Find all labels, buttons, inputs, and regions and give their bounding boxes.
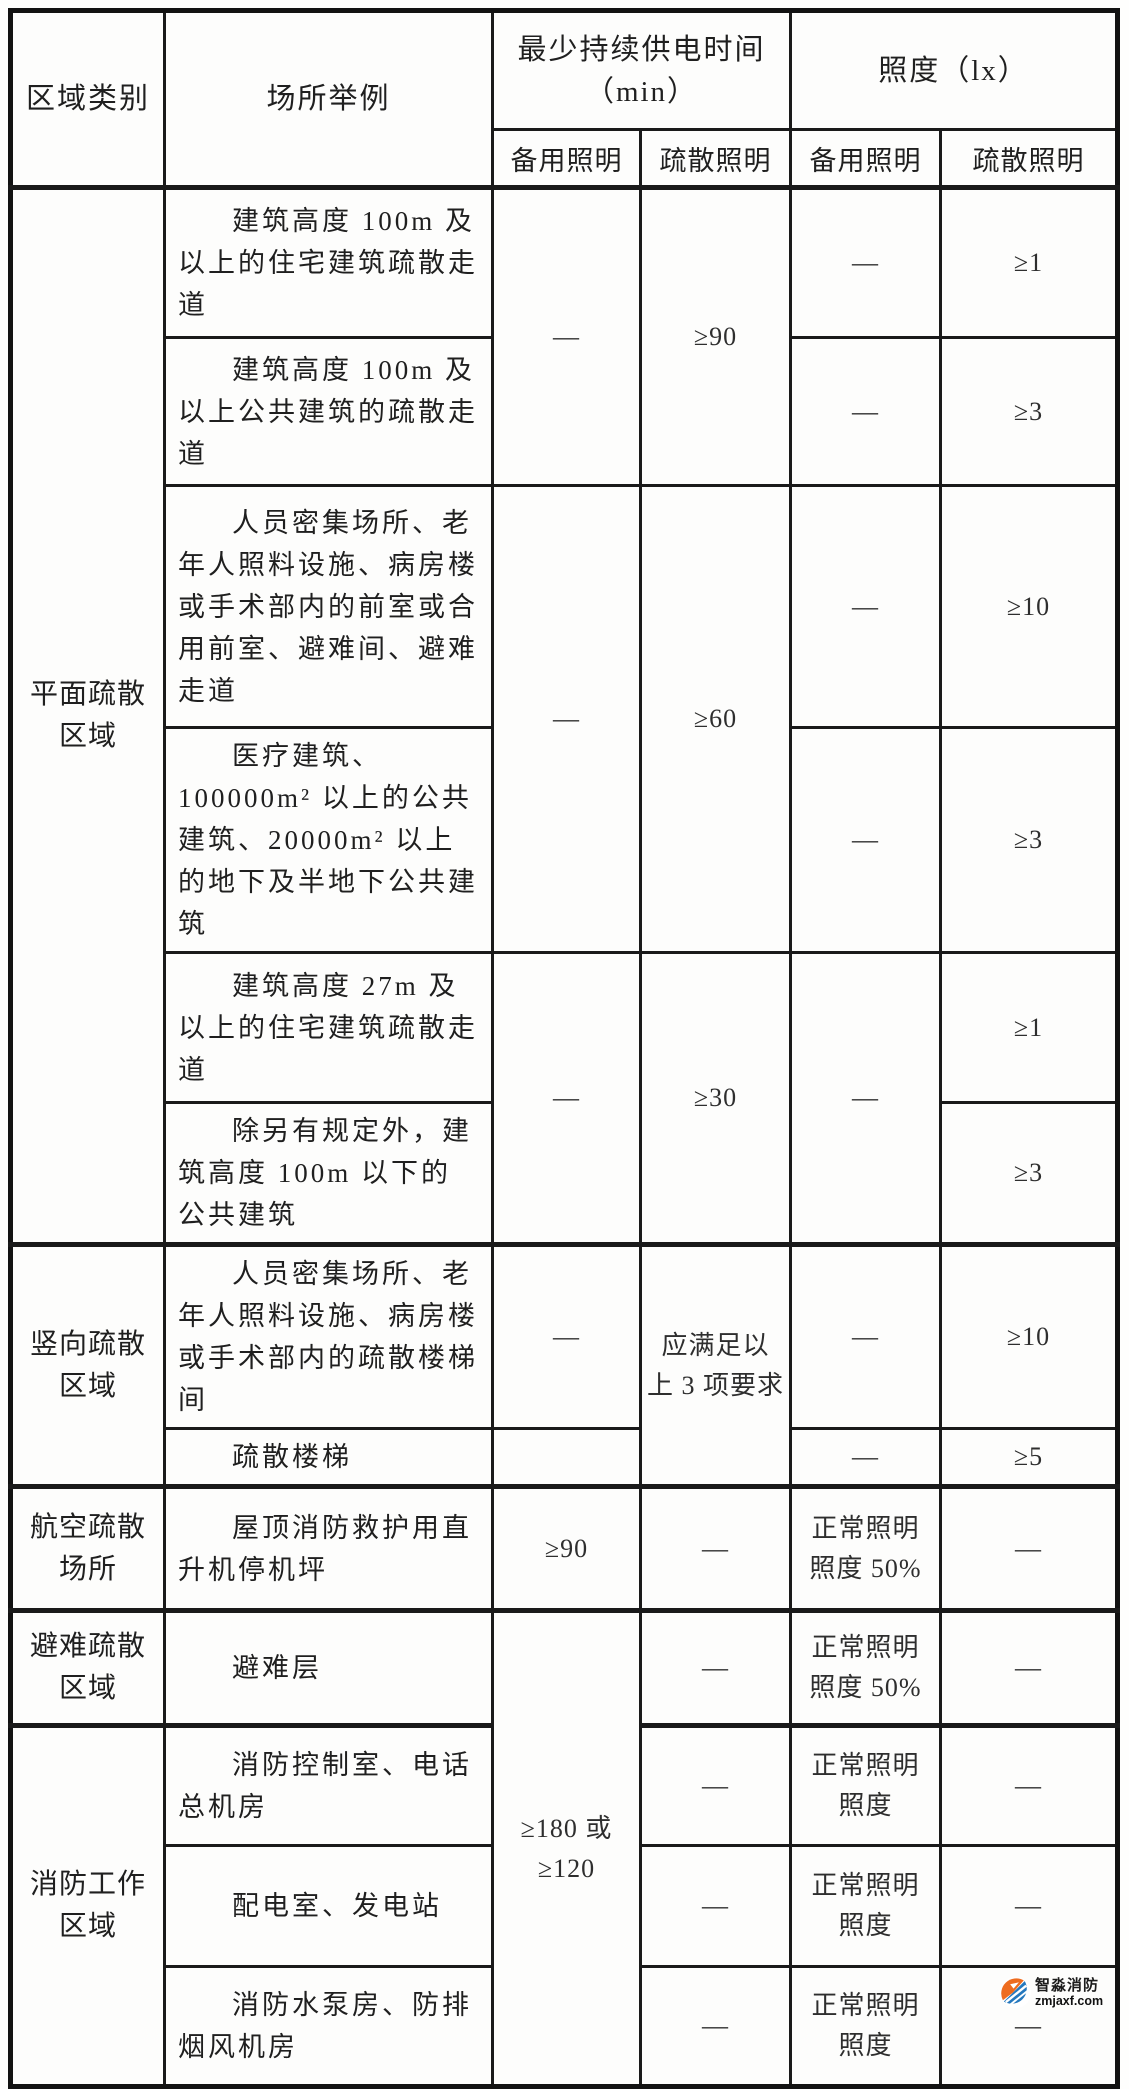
lux-backup-r13: 正常照明 照度	[791, 1967, 941, 2087]
emergency-lighting-requirements-table: 区域类别 场所举例 最少持续供电时间 （min） 照度（lx） 备用照明 疏散照…	[8, 8, 1120, 2089]
min-backup-r5-6: —	[493, 953, 641, 1245]
place-residential-over-27m: 建筑高度 27m 及以上的住宅建筑疏散走道	[165, 953, 493, 1103]
min-evac-r3-4: ≥60	[641, 486, 791, 953]
table-row: 疏散楼梯 — ≥5	[11, 1429, 1118, 1487]
header-place-examples: 场所举例	[165, 11, 493, 188]
lux-evac-r11: —	[941, 1726, 1118, 1846]
min-backup-r9: ≥90	[493, 1487, 641, 1611]
watermark-text: 智淼消防 zmjaxf.com	[1035, 1978, 1103, 2008]
lux-evac-r7: ≥10	[941, 1245, 1118, 1429]
lux-evac-r12: —	[941, 1846, 1118, 1967]
min-backup-r7: —	[493, 1245, 641, 1429]
min-evac-r12: —	[641, 1846, 791, 1967]
watermark-site: zmjaxf.com	[1035, 1995, 1103, 2008]
min-evac-r1-2: ≥90	[641, 188, 791, 486]
min-evac-r11: —	[641, 1726, 791, 1846]
place-evacuation-stairs: 疏散楼梯	[165, 1429, 493, 1487]
lux-backup-r11: 正常照明 照度	[791, 1726, 941, 1846]
min-backup-r10-13: ≥180 或 ≥120	[493, 1611, 641, 2087]
header-area-category: 区域类别	[11, 11, 165, 188]
watermark-logo-icon	[999, 1976, 1032, 2009]
header-min-supply-time: 最少持续供电时间 （min）	[493, 11, 791, 130]
watermark: 智淼消防 zmjaxf.com	[999, 1976, 1103, 2009]
table-row: 避难疏散 区域 避难层 ≥180 或 ≥120 — 正常照明 照度 50% —	[11, 1611, 1118, 1726]
min-evac-r13: —	[641, 1967, 791, 2087]
min-evac-r5-6: ≥30	[641, 953, 791, 1245]
table-row: 航空疏散 场所 屋顶消防救护用直升机停机坪 ≥90 — 正常照明 照度 50% …	[11, 1487, 1118, 1611]
lux-evac-r9: —	[941, 1487, 1118, 1611]
scanned-document-page: { "table": { "header": { "area": "区域类别",…	[0, 0, 1129, 2036]
place-rooftop-helipad: 屋顶消防救护用直升机停机坪	[165, 1487, 493, 1611]
header-row-groups: 区域类别 场所举例 最少持续供电时间 （min） 照度（lx）	[11, 11, 1118, 130]
place-residential-over-100m: 建筑高度 100m 及以上的住宅建筑疏散走道	[165, 188, 493, 338]
table-row: 人员密集场所、老年人照料设施、病房楼或手术部内的前室或合用前室、避难间、避难走道…	[11, 486, 1118, 728]
header-time-evacuation-lighting: 疏散照明	[641, 130, 791, 188]
lux-backup-r3: —	[791, 486, 941, 728]
min-evac-r10: —	[641, 1611, 791, 1726]
lux-evac-r10: —	[941, 1611, 1118, 1726]
watermark-brand: 智淼消防	[1035, 1978, 1103, 1993]
header-illuminance: 照度（lx）	[791, 11, 1118, 130]
header-lux-evacuation-lighting: 疏散照明	[941, 130, 1118, 188]
table-row: 平面疏散 区域 建筑高度 100m 及以上的住宅建筑疏散走道 — ≥90 — ≥…	[11, 188, 1118, 338]
place-power-distribution-room: 配电室、发电站	[165, 1846, 493, 1967]
lux-evac-r5: ≥1	[941, 953, 1118, 1103]
area-vertical-evacuation: 竖向疏散 区域	[11, 1245, 165, 1487]
area-fire-work: 消防工作 区域	[11, 1726, 165, 2087]
header-time-backup-lighting: 备用照明	[493, 130, 641, 188]
place-refuge-floor: 避难层	[165, 1611, 493, 1726]
lux-backup-r1: —	[791, 188, 941, 338]
lux-backup-r10: 正常照明 照度 50%	[791, 1611, 941, 1726]
table-row: 竖向疏散 区域 人员密集场所、老年人照料设施、病房楼或手术部内的疏散楼梯间 — …	[11, 1245, 1118, 1429]
place-medical-large-public: 医疗建筑、100000m² 以上的公共建筑、20000m² 以上的地下及半地下公…	[165, 728, 493, 953]
place-crowded-front-rooms: 人员密集场所、老年人照料设施、病房楼或手术部内的前室或合用前室、避难间、避难走道	[165, 486, 493, 728]
min-backup-r1-2: —	[493, 188, 641, 486]
area-plane-evacuation: 平面疏散 区域	[11, 188, 165, 1245]
lux-backup-r12: 正常照明 照度	[791, 1846, 941, 1967]
min-evac-r7-8: 应满足以 上 3 项要求	[641, 1245, 791, 1487]
lux-evac-r2: ≥3	[941, 338, 1118, 486]
place-fire-control-room: 消防控制室、电话总机房	[165, 1726, 493, 1846]
place-evacuation-stairwell: 人员密集场所、老年人照料设施、病房楼或手术部内的疏散楼梯间	[165, 1245, 493, 1429]
header-lux-backup-lighting: 备用照明	[791, 130, 941, 188]
lux-evac-r6: ≥3	[941, 1103, 1118, 1245]
lux-backup-r5-6: —	[791, 953, 941, 1245]
place-public-under-100m: 除另有规定外，建筑高度 100m 以下的公共建筑	[165, 1103, 493, 1245]
min-backup-r3-4: —	[493, 486, 641, 953]
table-row: 建筑高度 27m 及以上的住宅建筑疏散走道 — ≥30 — ≥1	[11, 953, 1118, 1103]
lux-backup-r8: —	[791, 1429, 941, 1487]
lux-evac-r3: ≥10	[941, 486, 1118, 728]
lux-backup-r4: —	[791, 728, 941, 953]
min-backup-r8	[493, 1429, 641, 1487]
area-aviation-evacuation: 航空疏散 场所	[11, 1487, 165, 1611]
min-evac-r9: —	[641, 1487, 791, 1611]
lux-backup-r9: 正常照明 照度 50%	[791, 1487, 941, 1611]
place-fire-pump-room: 消防水泵房、防排烟风机房	[165, 1967, 493, 2087]
lux-evac-r8: ≥5	[941, 1429, 1118, 1487]
lux-evac-r1: ≥1	[941, 188, 1118, 338]
area-refuge-evacuation: 避难疏散 区域	[11, 1611, 165, 1726]
lux-backup-r2: —	[791, 338, 941, 486]
place-public-over-100m: 建筑高度 100m 及以上公共建筑的疏散走道	[165, 338, 493, 486]
lux-evac-r4: ≥3	[941, 728, 1118, 953]
lux-backup-r7: —	[791, 1245, 941, 1429]
